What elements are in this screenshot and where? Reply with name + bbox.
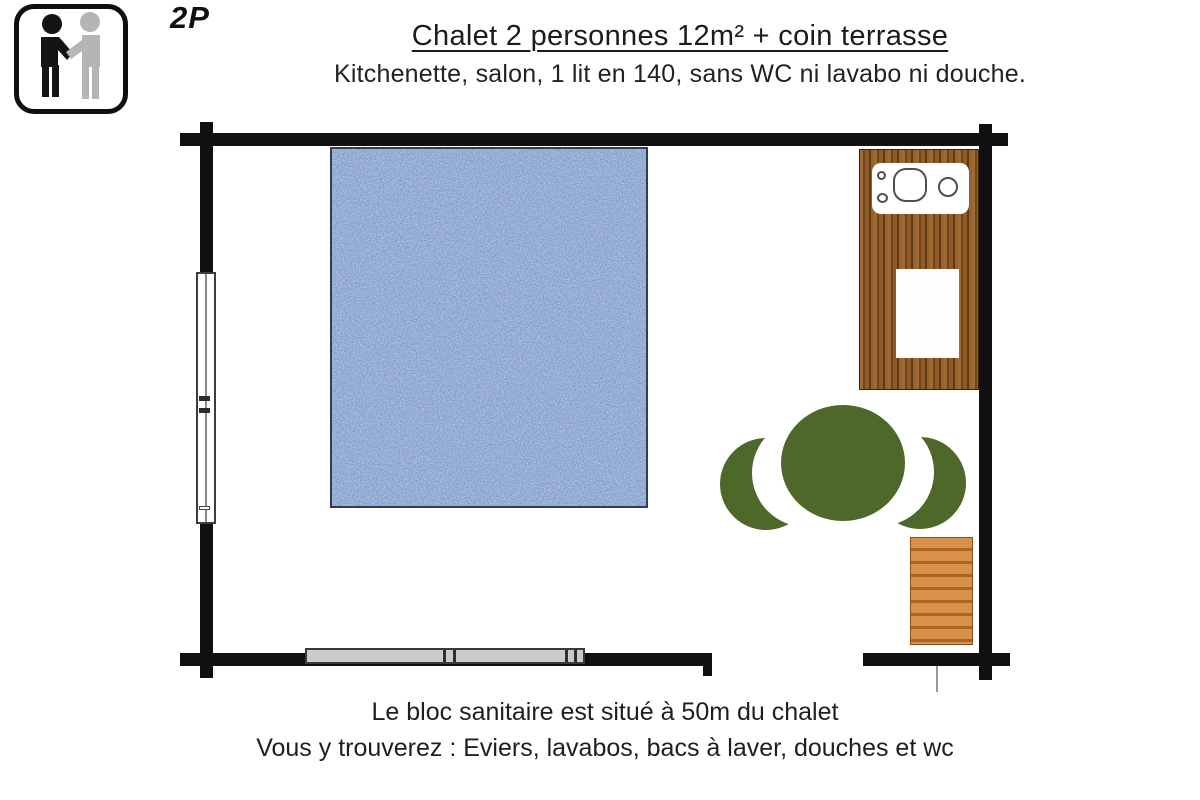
plant (705, 393, 975, 538)
sanitary-details-note: Vous y trouverez : Eviers, lavabos, bacs… (5, 734, 1200, 763)
wall-left-upper (200, 122, 213, 274)
wall-bottom-right (863, 653, 1010, 666)
cooktop-knob-icon (877, 171, 886, 180)
terrace-steps (910, 537, 973, 645)
left-wall-window (196, 272, 216, 524)
window-divider-mark (453, 650, 456, 662)
wall-right (979, 124, 992, 680)
kitchenette-counter (859, 149, 979, 390)
plant-crown (781, 405, 905, 521)
window-divider-mark (565, 650, 568, 662)
wall-top (180, 133, 1008, 146)
double-bed (330, 147, 648, 508)
side-table (896, 269, 959, 358)
bed-fabric-texture (332, 149, 646, 506)
sink-basin-icon (893, 168, 927, 202)
floorplan (0, 0, 1200, 800)
chalet-floorplan-page: 2P Chalet 2 personnes 12m² + coin terras… (0, 0, 1200, 800)
door-swing-mark (936, 666, 938, 692)
bottom-wall-window (305, 648, 585, 664)
hob-burner-icon (938, 177, 958, 197)
window-latch (199, 408, 210, 413)
window-sill-mark (199, 506, 210, 510)
window-divider-mark (574, 650, 577, 662)
sanitary-block-note: Le bloc sanitaire est situé à 50m du cha… (5, 698, 1200, 727)
cooktop-sink (872, 163, 969, 214)
window-divider-mark (443, 650, 446, 662)
plant-icon (705, 393, 975, 538)
door-opening-jamb (703, 653, 712, 676)
cooktop-knob-icon (877, 193, 888, 203)
window-latch (199, 396, 210, 401)
